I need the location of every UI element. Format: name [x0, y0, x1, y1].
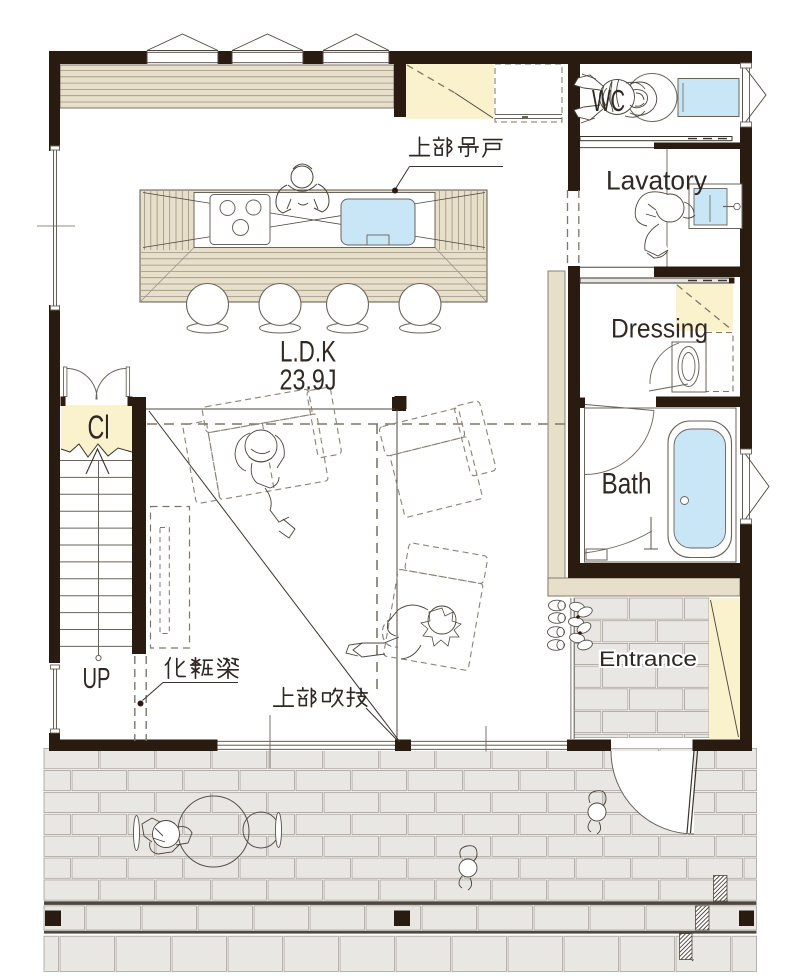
svg-text:Cl: Cl: [88, 409, 110, 446]
svg-text:Dressing: Dressing: [611, 314, 708, 344]
svg-text:23.9J: 23.9J: [280, 365, 337, 397]
svg-text:UP: UP: [83, 663, 111, 695]
svg-text:Lavatory: Lavatory: [606, 166, 708, 196]
svg-text:Entrance: Entrance: [599, 647, 697, 671]
svg-text:WC: WC: [592, 83, 625, 118]
svg-text:Bath: Bath: [602, 468, 652, 501]
